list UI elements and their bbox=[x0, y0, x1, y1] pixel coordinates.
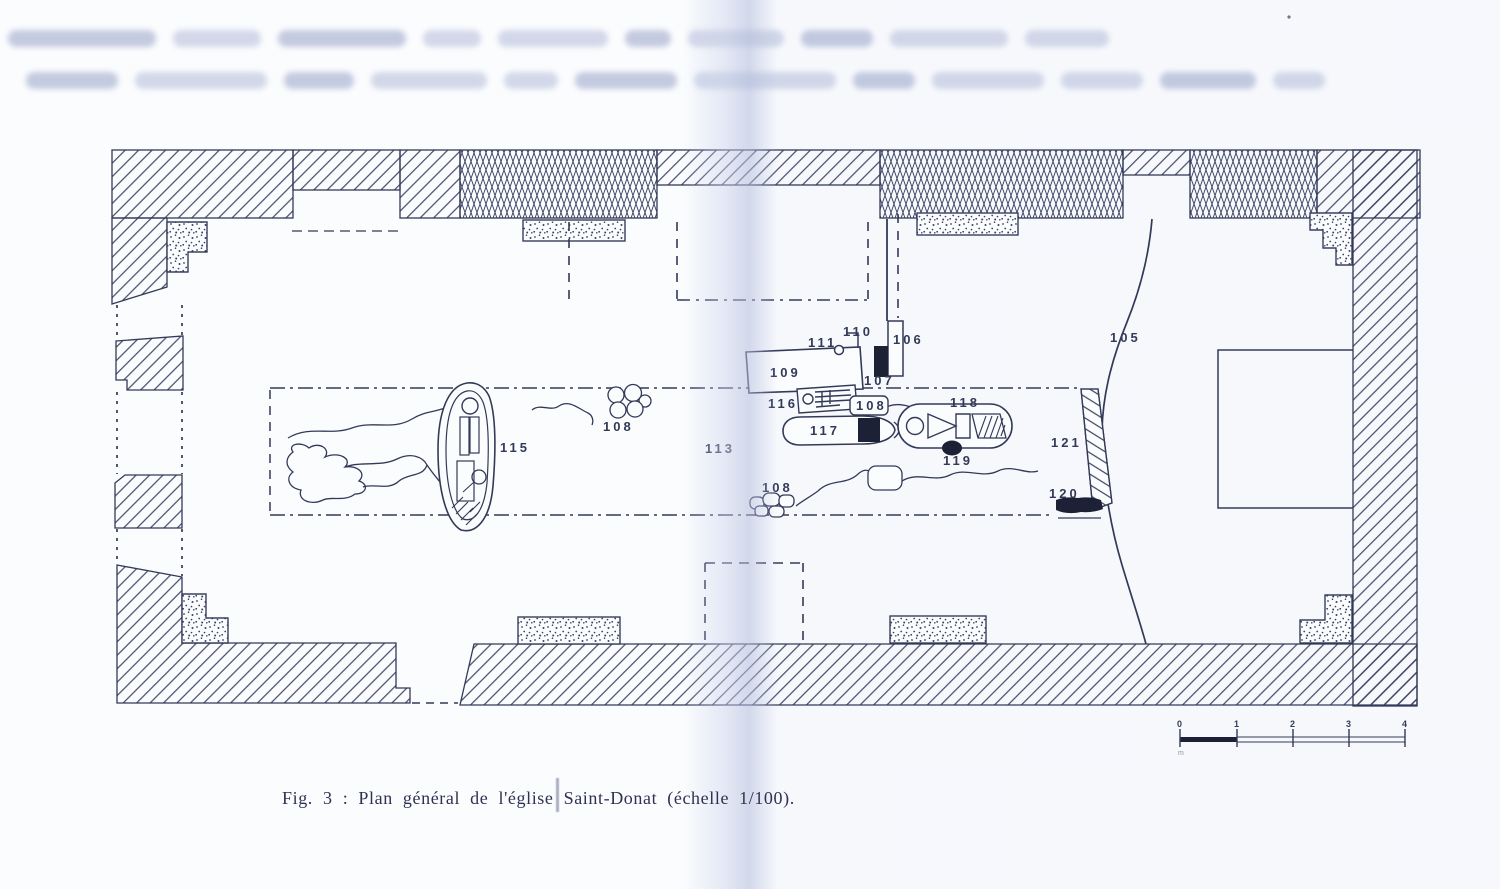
buttress-stepped-nw bbox=[167, 222, 207, 272]
stone bbox=[627, 401, 643, 417]
wall-segment bbox=[1123, 150, 1190, 175]
tomb-106 bbox=[874, 219, 903, 377]
scanned-page: 0 1 2 3 4 m 105 106 107 108 108 108 109 … bbox=[0, 0, 1500, 889]
choir-platform-outline bbox=[1218, 350, 1353, 508]
feature-121-hatched-band bbox=[1081, 389, 1112, 510]
faded-text-line-2 bbox=[26, 72, 1325, 89]
label-119: 119 bbox=[943, 453, 973, 468]
wavy-contour bbox=[796, 491, 818, 506]
label-107: 107 bbox=[864, 373, 895, 388]
wavy-contour bbox=[818, 470, 869, 491]
label-109: 109 bbox=[770, 365, 801, 380]
wall-segment bbox=[112, 218, 167, 304]
plan-svg: 0 1 2 3 4 m 105 106 107 108 108 108 109 … bbox=[0, 0, 1500, 889]
top-wall bbox=[112, 150, 1420, 218]
label-108-lower: 108 bbox=[762, 480, 793, 495]
wall-segment bbox=[400, 150, 460, 218]
label-110: 110 bbox=[843, 324, 873, 339]
label-113: 113 bbox=[705, 441, 735, 456]
faded-text-line-1 bbox=[8, 30, 1109, 47]
label-111: 111 bbox=[808, 335, 837, 350]
bottom-wall bbox=[117, 565, 1417, 705]
apse bbox=[1056, 219, 1353, 644]
scale-tick-label: 1 bbox=[1234, 719, 1239, 729]
wall-segment bbox=[460, 644, 1417, 705]
label-118: 118 bbox=[950, 395, 980, 410]
stone bbox=[779, 495, 794, 507]
scale-bar: 0 1 2 3 4 m bbox=[1177, 719, 1407, 757]
wall-corner-southwest bbox=[117, 565, 410, 703]
scale-unit-label: m bbox=[1178, 750, 1184, 757]
scale-tick-label: 2 bbox=[1290, 719, 1295, 729]
wall-segment bbox=[115, 475, 182, 528]
tomb-116 bbox=[797, 385, 857, 413]
stone bbox=[769, 506, 784, 517]
wall-segment-door-lintel bbox=[293, 150, 400, 190]
scale-bar-lines bbox=[1237, 737, 1405, 742]
wall-segment bbox=[112, 150, 293, 218]
stone bbox=[608, 387, 624, 403]
grave-115 bbox=[438, 383, 495, 531]
apse-curve bbox=[1102, 219, 1152, 644]
label-105: 105 bbox=[1110, 330, 1141, 345]
scale-tick-label: 3 bbox=[1346, 719, 1351, 729]
wavy-contour bbox=[902, 469, 1038, 481]
buttress-stepped-sw bbox=[182, 594, 228, 643]
label-115: 115 bbox=[500, 440, 530, 455]
buttress-top-center bbox=[523, 220, 625, 241]
right-wall bbox=[1353, 150, 1417, 706]
buttresses bbox=[167, 213, 1352, 644]
label-117: 117 bbox=[810, 423, 840, 438]
rubble-blob bbox=[287, 444, 365, 502]
wall-segment-crosshatch bbox=[880, 150, 1123, 218]
wall-segment-crosshatch bbox=[1190, 150, 1317, 218]
tomb-117-black bbox=[858, 418, 880, 442]
wall-segment-crosshatch bbox=[460, 150, 657, 218]
label-121: 121 bbox=[1051, 435, 1082, 450]
scale-tick-label: 4 bbox=[1402, 719, 1407, 729]
label-106: 106 bbox=[893, 332, 924, 347]
wall-segment bbox=[657, 150, 880, 185]
wavy-contour bbox=[532, 404, 593, 425]
figure-caption: Fig. 3 : Plan général de l'église Saint-… bbox=[282, 788, 1082, 809]
buttress-bottom-center-west bbox=[518, 617, 620, 644]
wavy-contour bbox=[345, 456, 427, 487]
scan-speck bbox=[1287, 15, 1290, 18]
stones-108-upper bbox=[608, 385, 651, 419]
stones-108-lower bbox=[750, 493, 794, 517]
buttress-stepped-ne bbox=[1310, 213, 1352, 265]
scale-tick-label: 0 bbox=[1177, 719, 1182, 729]
label-116: 116 bbox=[768, 396, 798, 411]
buttress-bottom-center-east bbox=[890, 616, 986, 643]
stone-block bbox=[868, 466, 902, 490]
label-108-boxed: 108 bbox=[856, 398, 887, 413]
label-108-upper: 108 bbox=[603, 419, 634, 434]
tomb-116-outline bbox=[797, 385, 857, 413]
tomb-106-outline bbox=[888, 321, 903, 376]
stone bbox=[610, 402, 626, 418]
scale-bar-solid-segment bbox=[1180, 737, 1237, 742]
buttress-top-east bbox=[917, 213, 1018, 235]
label-120: 120 bbox=[1049, 486, 1080, 501]
tomb-117 bbox=[783, 416, 899, 445]
stone bbox=[755, 506, 768, 516]
wall-segment bbox=[116, 336, 183, 390]
buttress-stepped-se bbox=[1300, 595, 1352, 643]
